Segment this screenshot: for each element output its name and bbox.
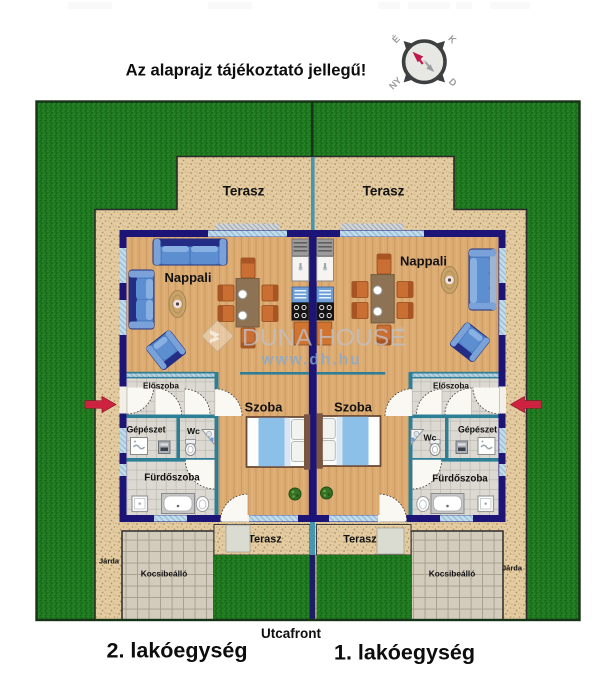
svg-text:2. lakóegység: 2. lakóegység (106, 639, 247, 663)
svg-text:Fürdőszoba: Fürdőszoba (432, 474, 488, 485)
svg-text:Terasz: Terasz (363, 184, 405, 199)
svg-text:Előszoba: Előszoba (143, 382, 179, 391)
svg-text:Utcafront: Utcafront (261, 626, 322, 641)
svg-text:Gépészet: Gépészet (126, 425, 165, 435)
svg-text:Wc: Wc (187, 426, 200, 436)
svg-text:1. lakóegység: 1. lakóegység (334, 641, 475, 665)
svg-text:Szoba: Szoba (245, 400, 284, 415)
svg-text:Gépészet: Gépészet (458, 425, 497, 435)
svg-text:Járda: Járda (99, 557, 120, 566)
svg-text:Terasz: Terasz (223, 184, 265, 199)
svg-text:Terasz: Terasz (343, 534, 377, 546)
svg-text:Nappali: Nappali (400, 254, 447, 269)
svg-text:Fürdőszoba: Fürdőszoba (144, 473, 200, 484)
svg-text:www.dh.hu: www.dh.hu (260, 352, 361, 369)
svg-text:Kocsibeálló: Kocsibeálló (141, 569, 188, 579)
svg-text:Kocsibeálló: Kocsibeálló (429, 569, 476, 579)
svg-text:Az alaprajz tájékoztató jelleg: Az alaprajz tájékoztató jellegű! (126, 61, 367, 80)
svg-text:Előszoba: Előszoba (433, 382, 469, 391)
svg-text:Szoba: Szoba (334, 400, 373, 415)
svg-text:DUNA HOUSE: DUNA HOUSE (242, 325, 406, 352)
svg-text:Nappali: Nappali (165, 270, 212, 285)
svg-text:Terasz: Terasz (248, 534, 282, 546)
svg-text:®: ® (399, 326, 405, 335)
svg-text:Járda: Járda (502, 564, 523, 573)
svg-text:Wc: Wc (424, 433, 437, 443)
